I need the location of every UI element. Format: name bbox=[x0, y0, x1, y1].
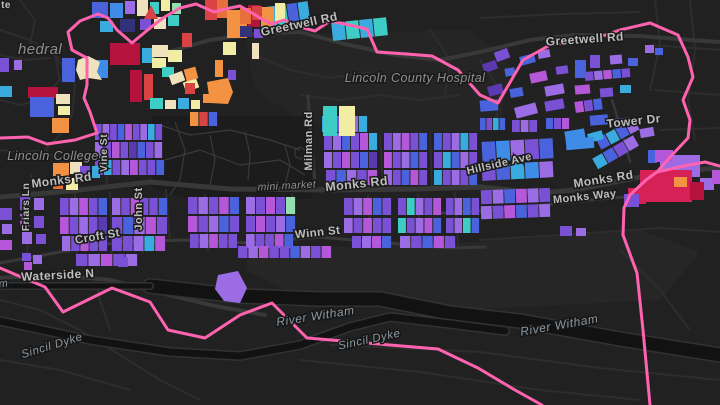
building bbox=[246, 234, 255, 248]
minor-road bbox=[0, 360, 130, 390]
building bbox=[266, 197, 275, 214]
building bbox=[58, 106, 70, 115]
building bbox=[123, 217, 133, 234]
building bbox=[546, 118, 553, 129]
building bbox=[393, 133, 401, 150]
building-terrace-row bbox=[398, 198, 441, 215]
building bbox=[472, 198, 480, 215]
building bbox=[188, 216, 198, 232]
building-terrace-row bbox=[434, 133, 477, 150]
building bbox=[223, 42, 236, 55]
building bbox=[493, 118, 499, 130]
building bbox=[207, 78, 233, 104]
building bbox=[199, 112, 207, 126]
building bbox=[433, 218, 441, 233]
building bbox=[433, 198, 441, 215]
building bbox=[113, 160, 121, 175]
building bbox=[34, 216, 44, 228]
building-terrace-row bbox=[344, 198, 391, 215]
building bbox=[230, 216, 240, 232]
building-terrace-row bbox=[188, 216, 239, 232]
building bbox=[575, 60, 586, 78]
building bbox=[286, 197, 295, 214]
building bbox=[443, 152, 451, 168]
building bbox=[70, 198, 79, 215]
building bbox=[284, 234, 293, 248]
building bbox=[125, 124, 132, 140]
building bbox=[190, 234, 199, 248]
building bbox=[539, 161, 553, 178]
building bbox=[610, 54, 623, 64]
building bbox=[351, 152, 359, 168]
building bbox=[60, 217, 69, 234]
building bbox=[504, 189, 515, 203]
building bbox=[79, 217, 88, 234]
building bbox=[76, 254, 88, 266]
building bbox=[0, 208, 12, 220]
building bbox=[354, 218, 363, 233]
building bbox=[311, 246, 321, 258]
building bbox=[446, 218, 454, 233]
building bbox=[62, 58, 75, 82]
building bbox=[603, 70, 612, 80]
building bbox=[424, 218, 432, 233]
building bbox=[148, 124, 155, 140]
building bbox=[584, 100, 594, 112]
building bbox=[463, 218, 471, 233]
building bbox=[514, 102, 538, 118]
building bbox=[191, 100, 200, 109]
building bbox=[544, 83, 564, 96]
building-terrace-row bbox=[446, 218, 479, 233]
water-label: m bbox=[0, 277, 9, 290]
place-label: Lincoln College bbox=[7, 149, 98, 163]
building bbox=[628, 58, 638, 66]
place-label: hedral bbox=[18, 41, 62, 58]
building bbox=[266, 216, 275, 232]
building bbox=[209, 234, 218, 248]
building bbox=[88, 254, 100, 266]
building bbox=[185, 83, 195, 94]
building bbox=[539, 188, 550, 202]
building bbox=[200, 234, 209, 248]
building bbox=[407, 218, 415, 233]
map-viewport[interactable]: tehedralGreetwell RdGreetwell RdLincoln … bbox=[0, 0, 720, 405]
building bbox=[121, 160, 129, 175]
building bbox=[529, 120, 537, 132]
building bbox=[480, 118, 486, 130]
building bbox=[60, 198, 69, 215]
building bbox=[512, 120, 520, 132]
building bbox=[34, 198, 44, 210]
building bbox=[130, 70, 142, 102]
building bbox=[70, 217, 79, 234]
building bbox=[155, 142, 163, 158]
building-terrace-row bbox=[190, 234, 237, 248]
building bbox=[161, 0, 170, 11]
building bbox=[487, 118, 493, 130]
building bbox=[445, 236, 455, 248]
building bbox=[419, 152, 427, 168]
building bbox=[554, 118, 561, 129]
building-terrace-row bbox=[400, 236, 455, 248]
building bbox=[469, 133, 477, 150]
building-terrace-row bbox=[384, 133, 427, 150]
building bbox=[411, 236, 421, 248]
building bbox=[22, 253, 31, 261]
building bbox=[120, 19, 135, 32]
road-label: Milman Rd bbox=[303, 111, 315, 170]
building bbox=[152, 45, 168, 57]
building-terrace-row bbox=[246, 197, 295, 214]
building bbox=[280, 246, 290, 258]
building-terrace-row bbox=[398, 218, 441, 233]
building bbox=[645, 45, 654, 53]
building bbox=[373, 198, 382, 215]
building bbox=[155, 124, 162, 140]
building bbox=[344, 218, 353, 233]
building bbox=[121, 198, 129, 215]
building bbox=[150, 98, 163, 109]
building bbox=[402, 170, 410, 185]
minor-road bbox=[110, 192, 112, 258]
building bbox=[140, 124, 147, 140]
building bbox=[600, 87, 614, 97]
building bbox=[219, 234, 228, 248]
building-terrace-row bbox=[60, 198, 107, 215]
building bbox=[585, 71, 594, 81]
building bbox=[209, 112, 217, 126]
building bbox=[620, 85, 631, 93]
building bbox=[256, 197, 265, 214]
building bbox=[228, 70, 236, 80]
building bbox=[139, 160, 147, 175]
building-terrace-row bbox=[546, 118, 569, 129]
building bbox=[382, 218, 391, 233]
building bbox=[434, 236, 444, 248]
building bbox=[539, 138, 554, 159]
road-label: Waterside N bbox=[21, 266, 95, 284]
building bbox=[33, 255, 42, 264]
building bbox=[155, 236, 165, 251]
building-terrace-row bbox=[246, 234, 293, 248]
building bbox=[79, 198, 88, 215]
building bbox=[246, 197, 255, 214]
building bbox=[575, 84, 591, 94]
building bbox=[134, 236, 144, 251]
building-terrace-row bbox=[324, 152, 377, 168]
building bbox=[382, 236, 391, 248]
building bbox=[360, 133, 368, 150]
building bbox=[228, 234, 237, 248]
building bbox=[269, 246, 279, 258]
building bbox=[146, 217, 156, 234]
building bbox=[452, 170, 460, 185]
building bbox=[416, 218, 424, 233]
building bbox=[62, 236, 70, 251]
building-terrace-row bbox=[344, 218, 391, 233]
building bbox=[525, 162, 539, 179]
building bbox=[56, 94, 70, 104]
building-terrace-row bbox=[585, 68, 631, 81]
building bbox=[112, 142, 120, 158]
building bbox=[219, 197, 229, 214]
building bbox=[259, 246, 269, 258]
building bbox=[434, 133, 442, 150]
building bbox=[0, 58, 9, 72]
building bbox=[137, 0, 148, 16]
building bbox=[434, 170, 442, 185]
road-label: Friars Ln bbox=[20, 183, 32, 232]
road-label: Monks Rd bbox=[572, 167, 634, 190]
building bbox=[148, 160, 156, 175]
building bbox=[402, 133, 410, 150]
building bbox=[30, 97, 54, 117]
building bbox=[560, 226, 572, 236]
building bbox=[562, 118, 569, 129]
building bbox=[252, 43, 259, 59]
building bbox=[655, 48, 663, 55]
building-terrace-row bbox=[188, 197, 239, 214]
building bbox=[130, 160, 138, 175]
building bbox=[410, 133, 418, 150]
building bbox=[373, 17, 388, 36]
building bbox=[276, 197, 285, 214]
building bbox=[146, 142, 154, 158]
building bbox=[168, 15, 179, 26]
building bbox=[246, 216, 255, 232]
building bbox=[157, 217, 167, 234]
building bbox=[419, 170, 427, 185]
building bbox=[539, 204, 550, 217]
building bbox=[0, 240, 12, 250]
building bbox=[369, 133, 377, 150]
building bbox=[323, 106, 337, 136]
building bbox=[369, 152, 377, 168]
building bbox=[590, 55, 600, 68]
building bbox=[98, 198, 107, 215]
building bbox=[424, 198, 432, 215]
building bbox=[393, 170, 401, 185]
building bbox=[219, 216, 229, 232]
building bbox=[344, 198, 353, 215]
building bbox=[165, 100, 176, 109]
building bbox=[256, 216, 265, 232]
building bbox=[443, 133, 451, 150]
building bbox=[690, 182, 704, 200]
building bbox=[460, 133, 468, 150]
building bbox=[110, 43, 140, 65]
building bbox=[276, 216, 285, 232]
building bbox=[410, 170, 418, 185]
building bbox=[110, 124, 117, 140]
building bbox=[422, 236, 432, 248]
building bbox=[301, 246, 311, 258]
building bbox=[527, 204, 538, 217]
building bbox=[492, 205, 503, 218]
building bbox=[118, 257, 128, 267]
building bbox=[322, 246, 332, 258]
building bbox=[238, 246, 248, 258]
building bbox=[416, 198, 424, 215]
building bbox=[138, 142, 146, 158]
building bbox=[410, 152, 418, 168]
minor-road bbox=[480, 12, 640, 18]
building bbox=[125, 1, 135, 14]
building-terrace-row bbox=[512, 120, 537, 132]
building bbox=[240, 26, 252, 37]
building bbox=[674, 177, 687, 187]
building bbox=[354, 198, 363, 215]
building-terrace-row bbox=[238, 246, 331, 258]
building bbox=[168, 50, 182, 62]
building bbox=[443, 170, 451, 185]
building bbox=[182, 33, 192, 47]
building bbox=[52, 118, 69, 133]
building bbox=[500, 118, 506, 130]
building bbox=[339, 106, 355, 136]
road-label: Greetwell Rd bbox=[545, 29, 624, 48]
building bbox=[574, 101, 584, 113]
building bbox=[156, 160, 164, 175]
building bbox=[190, 112, 198, 126]
building bbox=[159, 198, 167, 215]
building bbox=[521, 120, 529, 132]
building bbox=[363, 198, 372, 215]
building bbox=[398, 198, 406, 215]
building bbox=[446, 198, 454, 215]
building bbox=[402, 152, 410, 168]
building bbox=[455, 218, 463, 233]
minor-road bbox=[430, 133, 432, 187]
minor-road bbox=[166, 190, 170, 242]
building bbox=[434, 152, 442, 168]
road-label: John St bbox=[133, 187, 145, 230]
building bbox=[215, 60, 223, 77]
building bbox=[129, 142, 137, 158]
building bbox=[118, 124, 125, 140]
building bbox=[209, 216, 219, 232]
building bbox=[2, 224, 12, 234]
map-canvas[interactable]: tehedralGreetwell RdGreetwell RdLincoln … bbox=[0, 0, 720, 405]
building bbox=[492, 189, 503, 203]
building bbox=[481, 206, 492, 219]
building bbox=[359, 116, 367, 132]
building bbox=[152, 58, 166, 68]
building bbox=[342, 152, 350, 168]
building bbox=[363, 218, 372, 233]
building bbox=[544, 98, 564, 111]
building bbox=[360, 152, 368, 168]
building bbox=[101, 254, 113, 266]
building bbox=[333, 152, 341, 168]
building bbox=[36, 234, 46, 244]
building bbox=[144, 236, 154, 251]
building bbox=[0, 86, 12, 97]
building bbox=[133, 124, 140, 140]
building bbox=[372, 236, 381, 248]
building bbox=[398, 218, 406, 233]
building bbox=[612, 69, 621, 79]
building bbox=[188, 197, 198, 214]
building bbox=[463, 198, 471, 215]
building bbox=[452, 152, 460, 168]
building bbox=[504, 205, 515, 218]
building bbox=[352, 236, 361, 248]
building-terrace-row bbox=[246, 216, 295, 232]
building bbox=[248, 246, 258, 258]
building bbox=[144, 74, 153, 100]
building bbox=[400, 236, 410, 248]
building bbox=[209, 197, 219, 214]
place-label: Lincoln County Hospital bbox=[345, 71, 486, 85]
building bbox=[393, 152, 401, 168]
building bbox=[472, 218, 480, 233]
building bbox=[110, 3, 123, 18]
building bbox=[256, 234, 265, 248]
building bbox=[14, 60, 22, 70]
building bbox=[89, 198, 98, 215]
road-label: Vine St bbox=[98, 134, 110, 172]
building bbox=[509, 87, 523, 98]
building bbox=[527, 188, 538, 202]
building bbox=[593, 98, 603, 110]
building bbox=[373, 218, 382, 233]
building-terrace-row bbox=[574, 98, 602, 113]
building bbox=[407, 198, 415, 215]
building bbox=[384, 133, 392, 150]
building bbox=[556, 65, 569, 75]
building bbox=[576, 228, 586, 236]
building bbox=[481, 190, 492, 204]
building bbox=[275, 234, 284, 248]
building bbox=[455, 198, 463, 215]
building bbox=[529, 70, 548, 83]
building bbox=[112, 198, 120, 215]
building bbox=[516, 189, 527, 203]
building bbox=[639, 127, 654, 138]
building bbox=[362, 236, 371, 248]
building bbox=[419, 133, 427, 150]
building bbox=[290, 246, 300, 258]
building bbox=[198, 216, 208, 232]
building bbox=[621, 68, 630, 78]
building-terrace-row bbox=[481, 204, 551, 219]
building bbox=[123, 236, 133, 251]
building bbox=[265, 234, 274, 248]
building bbox=[149, 198, 157, 215]
building bbox=[516, 205, 527, 218]
building bbox=[384, 152, 392, 168]
building bbox=[76, 56, 102, 80]
building bbox=[275, 3, 285, 21]
road-label: te bbox=[1, 0, 11, 11]
building bbox=[594, 70, 603, 80]
building bbox=[22, 232, 32, 244]
building bbox=[324, 152, 332, 168]
building bbox=[178, 98, 189, 109]
building-terrace-row bbox=[384, 152, 427, 168]
building bbox=[452, 133, 460, 150]
building bbox=[121, 142, 129, 158]
building bbox=[28, 87, 58, 98]
building bbox=[198, 197, 208, 214]
building bbox=[712, 170, 720, 184]
building bbox=[230, 197, 240, 214]
building-terrace-row bbox=[384, 170, 427, 185]
building bbox=[382, 198, 391, 215]
building-terrace-row bbox=[190, 112, 217, 126]
